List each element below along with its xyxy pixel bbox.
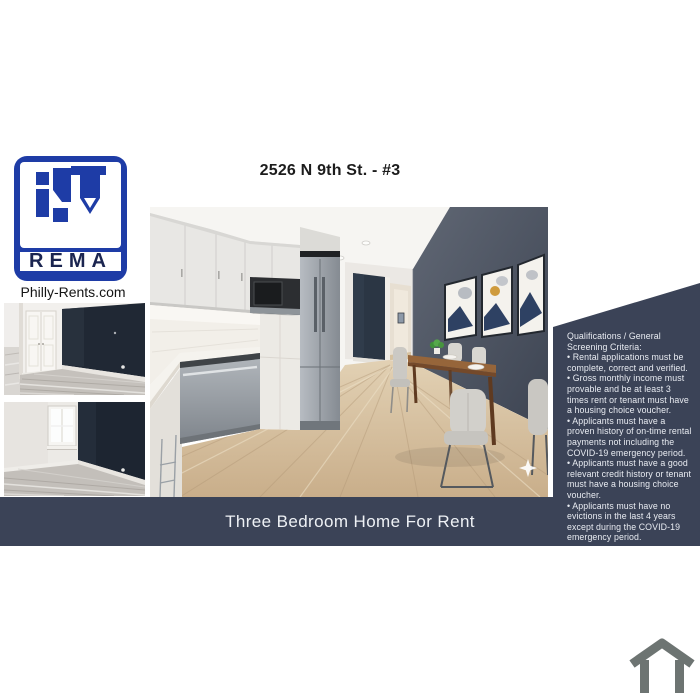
qualifications-panel: Qualifications / General Screening Crite… <box>553 283 700 546</box>
dark-accent-wall <box>62 303 145 377</box>
window <box>47 406 77 450</box>
qualifications-list: • Rental applications must be complete, … <box>567 352 694 543</box>
photo-room-window <box>4 402 145 496</box>
photo-kitchen-main <box>150 207 548 497</box>
art-frame-3 <box>518 255 544 335</box>
plate-1 <box>443 355 457 359</box>
plate-2 <box>468 364 484 369</box>
hallway-art <box>398 313 404 323</box>
art-frame-1 <box>445 277 476 340</box>
rema-logo: REMA <box>14 156 127 281</box>
photo-room-doors <box>4 303 145 395</box>
property-address-title: 2526 N 9th St. - #3 <box>150 162 510 180</box>
listing-banner-text: Three Bedroom Home For Rent <box>225 512 475 532</box>
qualification-item: • Applicants must have a good relevant c… <box>567 458 694 500</box>
pantry-cabinet <box>260 314 300 430</box>
refrigerator <box>300 251 340 430</box>
qualification-item: • Rental applications must be complete, … <box>567 352 694 373</box>
art-frame-2 <box>482 267 512 337</box>
qualifications-text: Qualifications / General Screening Crite… <box>553 283 700 543</box>
brand-website: Philly-Rents.com <box>0 284 146 300</box>
navy-back-panel <box>353 273 385 364</box>
house-outline-icon <box>628 636 696 694</box>
qualification-item: • Gross monthly income must provable and… <box>567 373 694 415</box>
dishwasher <box>180 353 260 444</box>
white-double-door <box>26 311 56 373</box>
microwave <box>250 277 300 315</box>
qualification-item: • Applicants must have no evictions in t… <box>567 501 694 543</box>
rema-logo-text: REMA <box>29 250 112 272</box>
qualification-item: • Applicants must have a proven history … <box>567 416 694 458</box>
qualifications-heading: Qualifications / General Screening Crite… <box>567 331 694 352</box>
rental-flyer-canvas: 2526 N 9th St. - #3 REMA Philly-Rents.co… <box>0 0 700 700</box>
